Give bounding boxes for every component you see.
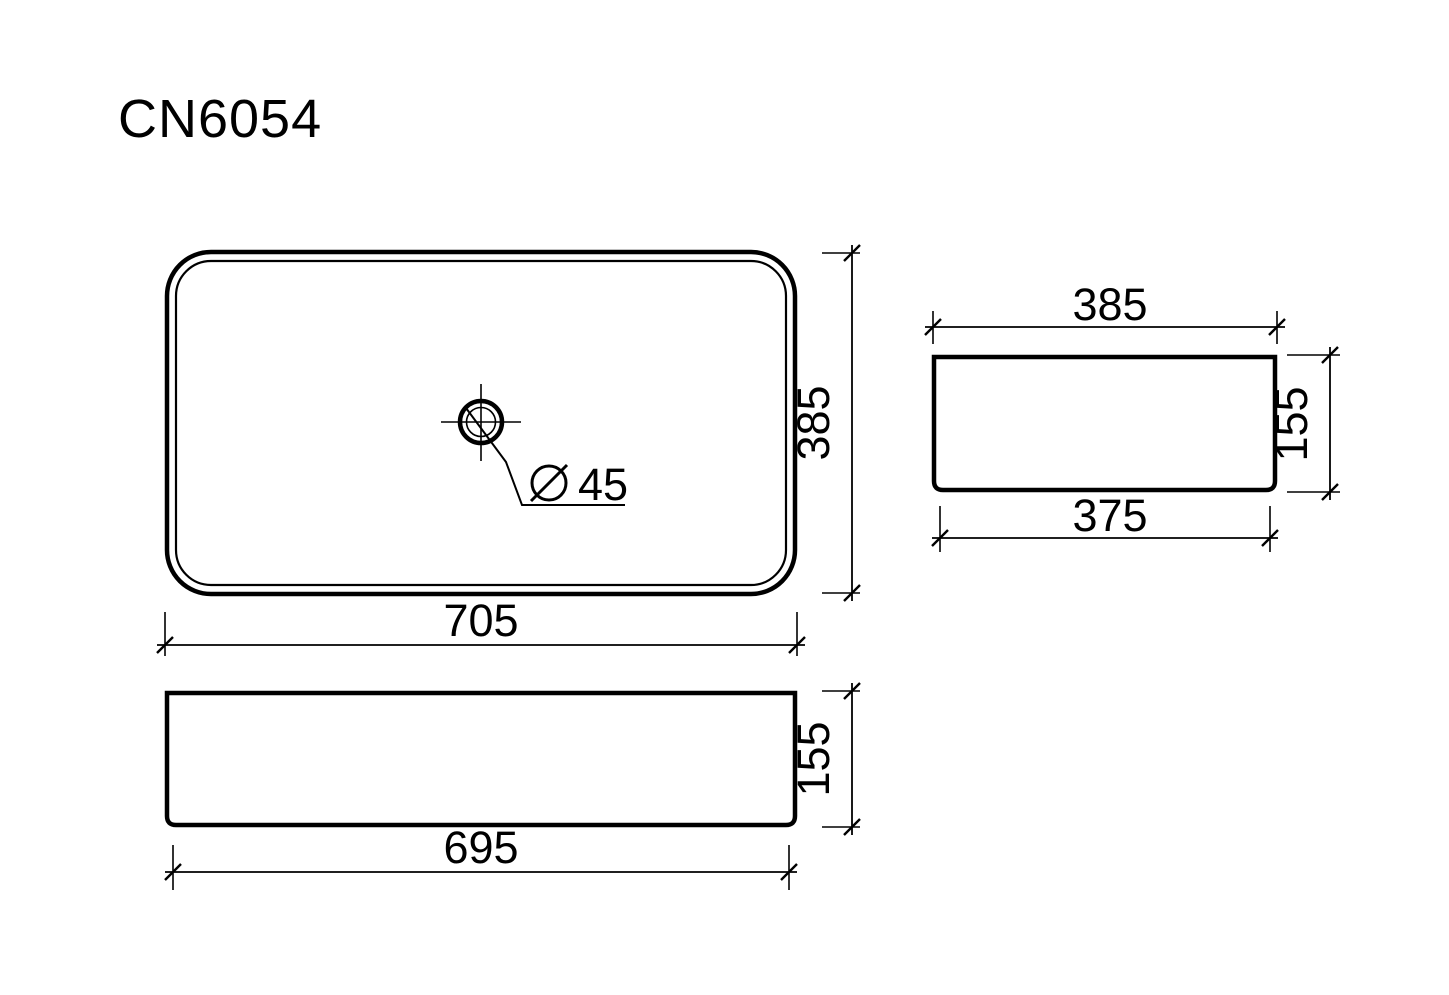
side-view-outline (934, 357, 1275, 490)
drain-hole (441, 384, 521, 461)
dim-value-height: 155 (788, 721, 839, 796)
drain-callout: 45 (466, 408, 628, 510)
technical-drawing-svg: CN6054 45 (0, 0, 1449, 995)
dim-value-height: 155 (1266, 386, 1317, 461)
side-view: 385 155 375 (925, 279, 1340, 552)
dim-value-bottom-width: 375 (1072, 490, 1147, 541)
drawing-title: CN6054 (118, 89, 322, 149)
front-view-outline (167, 693, 795, 825)
dim-value-top-width: 385 (1072, 279, 1147, 330)
dim-side-view-bottom-width: 375 (932, 490, 1278, 552)
dim-top-view-depth: 385 (788, 245, 860, 601)
drain-diameter-value: 45 (578, 459, 628, 510)
drawing-page: CN6054 45 (0, 0, 1449, 995)
dim-value-width: 705 (443, 595, 518, 646)
dim-side-view-top-width: 385 (925, 279, 1285, 344)
dim-value-depth: 385 (788, 385, 839, 460)
diameter-icon (531, 465, 567, 501)
dim-top-view-width: 705 (157, 595, 805, 656)
dim-front-view-height: 155 (788, 683, 860, 835)
dim-front-view-bottom-width: 695 (165, 822, 797, 890)
dim-value-bottom-width: 695 (443, 822, 518, 873)
top-view: 45 385 705 (157, 245, 860, 656)
front-view: 155 695 (165, 683, 860, 890)
